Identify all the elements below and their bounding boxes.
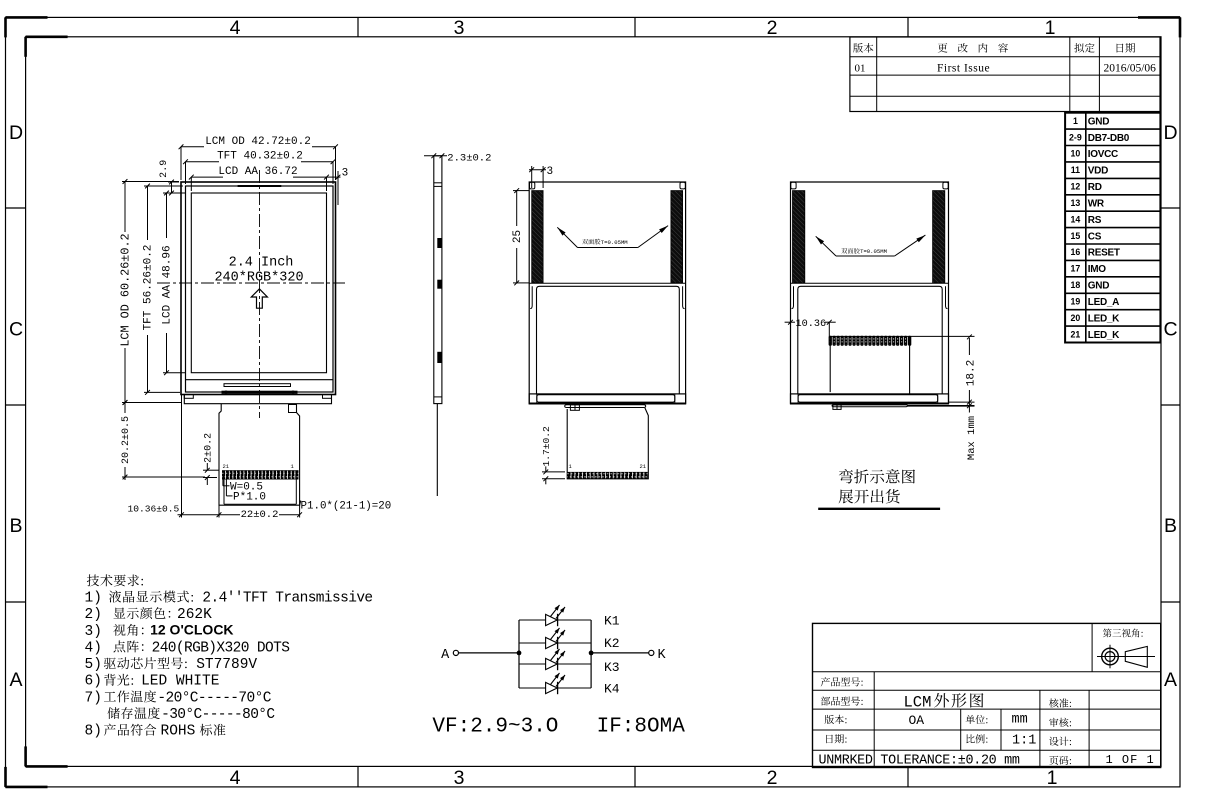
svg-text:25: 25: [512, 230, 524, 243]
svg-text:3: 3: [454, 17, 465, 39]
svg-text:A: A: [1164, 669, 1177, 691]
svg-text:A: A: [441, 648, 450, 663]
svg-text:K: K: [658, 648, 667, 663]
svg-text:First Issue: First Issue: [937, 62, 990, 74]
svg-text:10.36±0.5: 10.36±0.5: [128, 504, 180, 515]
svg-text:5): 5): [85, 657, 102, 673]
svg-text:2.4''TFT Transmissive: 2.4''TFT Transmissive: [202, 591, 372, 607]
svg-text:GND: GND: [1088, 116, 1109, 127]
svg-text:18: 18: [1071, 280, 1081, 290]
svg-text:WR: WR: [1088, 199, 1105, 210]
svg-text:K2: K2: [604, 636, 620, 651]
svg-text:T=0.05MM: T=0.05MM: [860, 248, 887, 255]
svg-text:2): 2): [85, 607, 102, 623]
svg-text:4: 4: [230, 17, 241, 39]
svg-text:Max 1mm: Max 1mm: [966, 416, 978, 460]
svg-text:2: 2: [767, 17, 778, 39]
svg-text:1: 1: [569, 463, 573, 470]
svg-text:21: 21: [640, 463, 647, 470]
svg-text:P1.0*(21-1)=20: P1.0*(21-1)=20: [301, 501, 392, 513]
svg-text:1: 1: [1073, 116, 1078, 126]
svg-text:C: C: [9, 319, 23, 341]
svg-text:LCM: LCM: [904, 693, 932, 711]
svg-text:LCM OD 42.72±0.2: LCM OD 42.72±0.2: [205, 136, 311, 148]
svg-text:3: 3: [547, 166, 554, 178]
svg-text:VF:2.9~3.O: VF:2.9~3.O: [432, 716, 558, 739]
svg-text:19: 19: [1071, 297, 1081, 307]
svg-text:22±0.2: 22±0.2: [241, 509, 279, 521]
svg-text:4: 4: [230, 767, 241, 789]
svg-text:12: 12: [1071, 182, 1081, 192]
svg-text:ST7789V: ST7789V: [196, 657, 257, 673]
svg-text:LCM OD 60.26±0.2: LCM OD 60.26±0.2: [118, 233, 132, 346]
svg-text:ROHS: ROHS: [161, 724, 196, 740]
svg-text:GND: GND: [1088, 281, 1109, 292]
svg-text:LCD AA 36.72: LCD AA 36.72: [218, 166, 297, 178]
svg-text:CS: CS: [1088, 231, 1102, 242]
svg-text:T=0.05MM: T=0.05MM: [601, 239, 628, 246]
svg-text:1.7±0.2: 1.7±0.2: [541, 426, 552, 467]
svg-text:240*RGB*320: 240*RGB*320: [214, 271, 303, 286]
svg-text:UNMRKED TOLERANCE:±0.20 mm: UNMRKED TOLERANCE:±0.20 mm: [819, 754, 1020, 769]
svg-text:LED_K: LED_K: [1088, 313, 1120, 324]
svg-text:3: 3: [342, 167, 349, 179]
svg-text:2±0.2: 2±0.2: [203, 433, 214, 463]
svg-text:B: B: [1164, 515, 1177, 537]
svg-text:K1: K1: [604, 614, 620, 629]
svg-text:RESET: RESET: [1088, 248, 1120, 259]
svg-text:C: C: [1163, 319, 1177, 341]
svg-text:1:1: 1:1: [1012, 733, 1036, 748]
svg-text:1): 1): [85, 591, 102, 607]
svg-text:1: 1: [291, 463, 295, 470]
svg-text:14: 14: [1071, 214, 1081, 224]
svg-text:P*1.0: P*1.0: [233, 492, 266, 504]
svg-text:LED WHITE: LED WHITE: [141, 674, 219, 690]
svg-text:7): 7): [85, 690, 102, 706]
svg-text:RS: RS: [1088, 215, 1102, 226]
svg-text:240(RGB)X320 DOTS: 240(RGB)X320 DOTS: [152, 640, 290, 656]
svg-text:LED_K: LED_K: [1088, 330, 1120, 341]
svg-text:VDD: VDD: [1088, 166, 1108, 177]
svg-text:D: D: [9, 122, 23, 144]
svg-text:K4: K4: [604, 682, 620, 697]
svg-text:DB7-DB0: DB7-DB0: [1088, 133, 1130, 144]
svg-text:20: 20: [1071, 313, 1081, 323]
svg-text:8): 8): [85, 724, 102, 740]
svg-text:1 OF 1: 1 OF 1: [1106, 753, 1155, 767]
svg-text:LED_A: LED_A: [1088, 297, 1119, 308]
svg-text:IMO: IMO: [1088, 264, 1107, 275]
svg-text:2016/05/06: 2016/05/06: [1104, 62, 1157, 74]
svg-text:LCD AA 48.96: LCD AA 48.96: [162, 245, 174, 324]
svg-text:20.2±0.5: 20.2±0.5: [121, 416, 132, 464]
svg-text:12 O'CLOCK: 12 O'CLOCK: [150, 621, 233, 637]
svg-text:16: 16: [1071, 247, 1081, 257]
svg-text:-20°C-----70°C: -20°C-----70°C: [157, 690, 271, 706]
svg-text:TFT 40.32±0.2: TFT 40.32±0.2: [217, 151, 303, 163]
svg-text:A: A: [9, 669, 22, 691]
svg-text:4): 4): [85, 640, 102, 656]
svg-text:K3: K3: [604, 660, 620, 675]
svg-text:3: 3: [454, 767, 465, 789]
svg-text:IOVCC: IOVCC: [1088, 149, 1118, 160]
svg-text:18.2: 18.2: [966, 360, 978, 386]
svg-text:13: 13: [1071, 198, 1081, 208]
svg-text:2-9: 2-9: [1069, 132, 1082, 142]
svg-text:11: 11: [1071, 165, 1080, 175]
svg-text:2.3±0.2: 2.3±0.2: [447, 152, 491, 164]
svg-text:10: 10: [1071, 149, 1081, 159]
svg-text:OA: OA: [909, 713, 925, 728]
svg-text:-30°C-----80°C: -30°C-----80°C: [161, 707, 275, 723]
svg-text:TFT 56.26±0.2: TFT 56.26±0.2: [143, 245, 155, 331]
svg-text:3): 3): [85, 624, 102, 640]
svg-text:1: 1: [1045, 17, 1056, 39]
svg-text:IF:8OMA: IF:8OMA: [597, 716, 686, 739]
svg-text:01: 01: [855, 62, 866, 74]
svg-text:1: 1: [1047, 767, 1058, 789]
svg-text:D: D: [1163, 122, 1177, 144]
svg-text:21: 21: [223, 463, 230, 470]
svg-text:15: 15: [1071, 231, 1081, 241]
svg-text:21: 21: [1071, 329, 1081, 339]
svg-text:2.9: 2.9: [159, 160, 170, 178]
svg-text:6): 6): [85, 674, 102, 690]
svg-text:B: B: [9, 515, 22, 537]
svg-text:2: 2: [767, 767, 778, 789]
svg-text:2.4 Inch: 2.4 Inch: [229, 256, 294, 271]
svg-text:10.36: 10.36: [796, 319, 827, 330]
svg-text:mm: mm: [1012, 713, 1028, 728]
svg-text:17: 17: [1071, 264, 1081, 274]
svg-text:RD: RD: [1088, 182, 1102, 193]
